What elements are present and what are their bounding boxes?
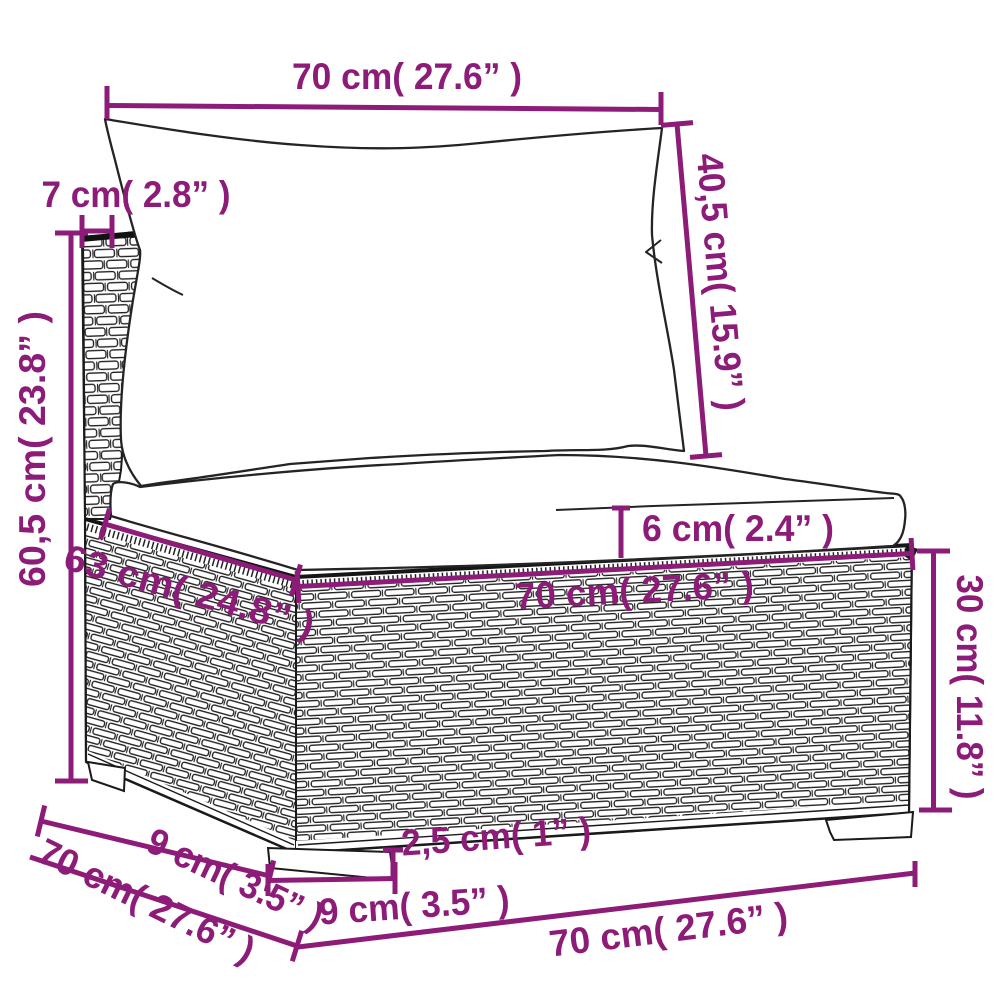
svg-text:60,5 cm( 23.8” ): 60,5 cm( 23.8” ) (12, 311, 53, 587)
svg-text:6 cm( 2.4” ): 6 cm( 2.4” ) (642, 508, 834, 549)
svg-text:70 cm( 27.6” ): 70 cm( 27.6” ) (292, 56, 522, 97)
svg-text:7 cm( 2.8” ): 7 cm( 2.8” ) (42, 174, 231, 215)
svg-text:30 cm( 11.8” ): 30 cm( 11.8” ) (949, 575, 990, 800)
